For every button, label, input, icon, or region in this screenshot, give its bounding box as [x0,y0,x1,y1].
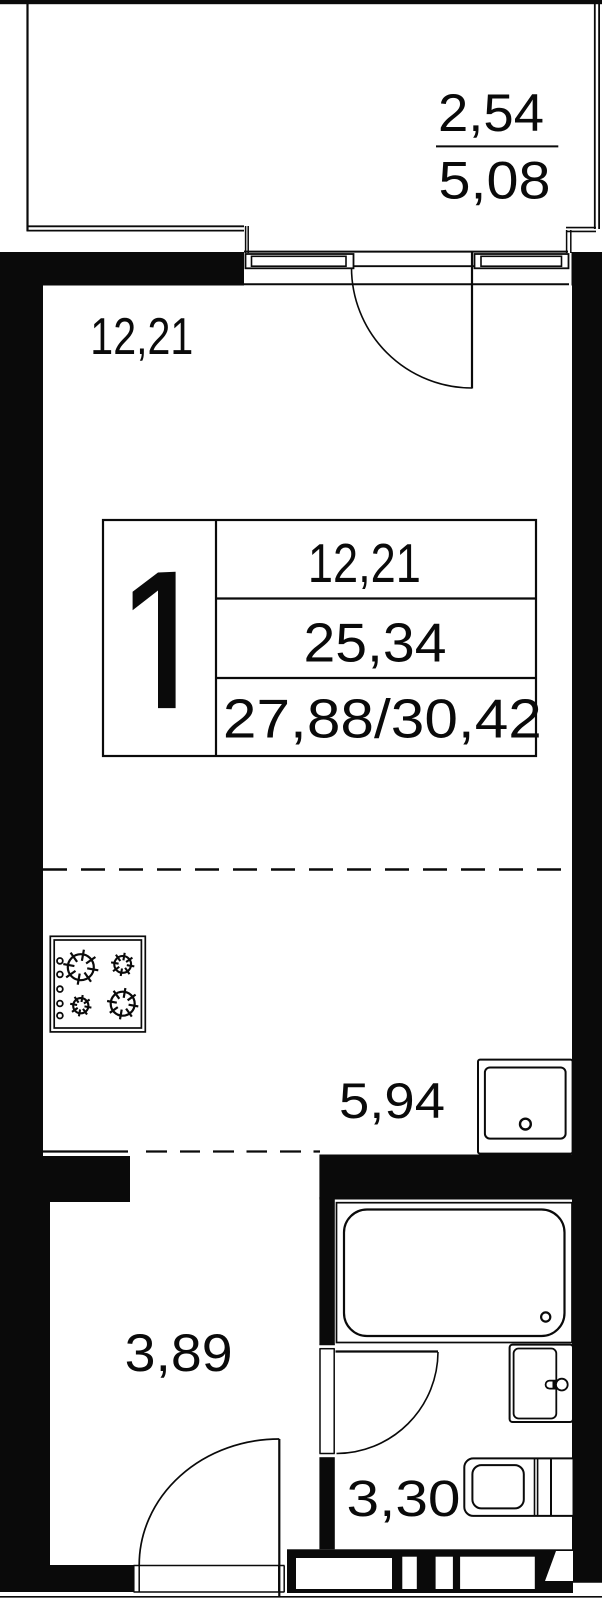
svg-text:12,21: 12,21 [308,532,421,594]
svg-text:3,89: 3,89 [125,1324,233,1383]
svg-text:27,88/30,42: 27,88/30,42 [223,687,542,749]
svg-text:25,34: 25,34 [304,611,447,673]
svg-text:5,94: 5,94 [339,1072,445,1129]
svg-text:12,21: 12,21 [90,307,193,365]
svg-text:5,08: 5,08 [439,152,551,211]
svg-text:3,30: 3,30 [347,1470,461,1527]
svg-text:2,54: 2,54 [438,84,544,143]
